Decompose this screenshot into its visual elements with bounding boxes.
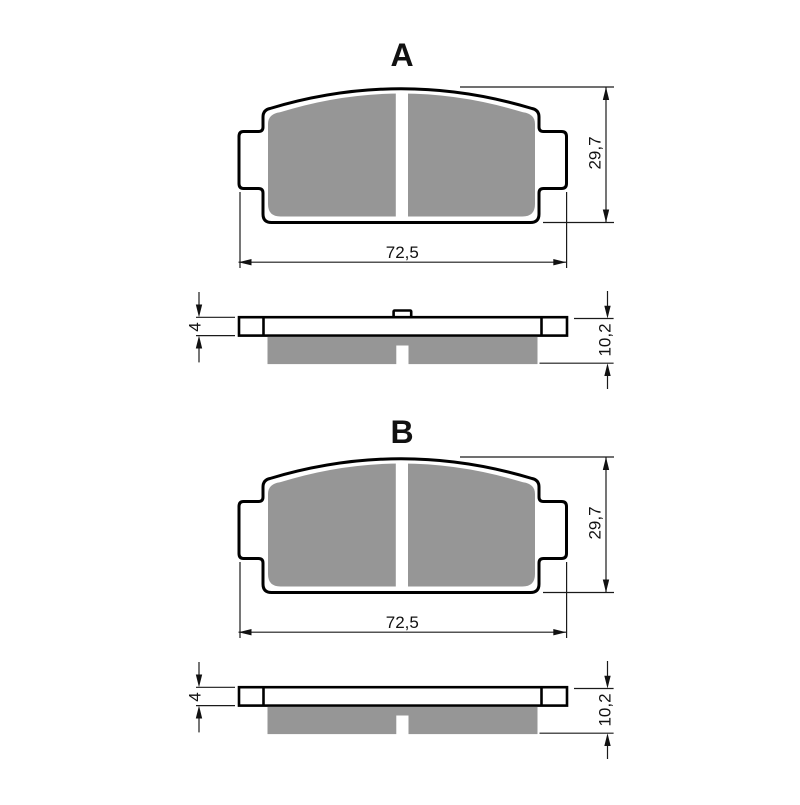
svg-text:10,2: 10,2 [596, 693, 615, 726]
svg-text:A: A [390, 37, 413, 73]
svg-text:29,7: 29,7 [586, 506, 605, 539]
svg-text:4: 4 [185, 322, 204, 331]
svg-text:72,5: 72,5 [386, 243, 419, 262]
svg-text:72,5: 72,5 [386, 613, 419, 632]
svg-text:B: B [390, 414, 413, 450]
svg-text:4: 4 [185, 692, 204, 701]
svg-text:29,7: 29,7 [586, 136, 605, 169]
svg-text:10,2: 10,2 [596, 323, 615, 356]
